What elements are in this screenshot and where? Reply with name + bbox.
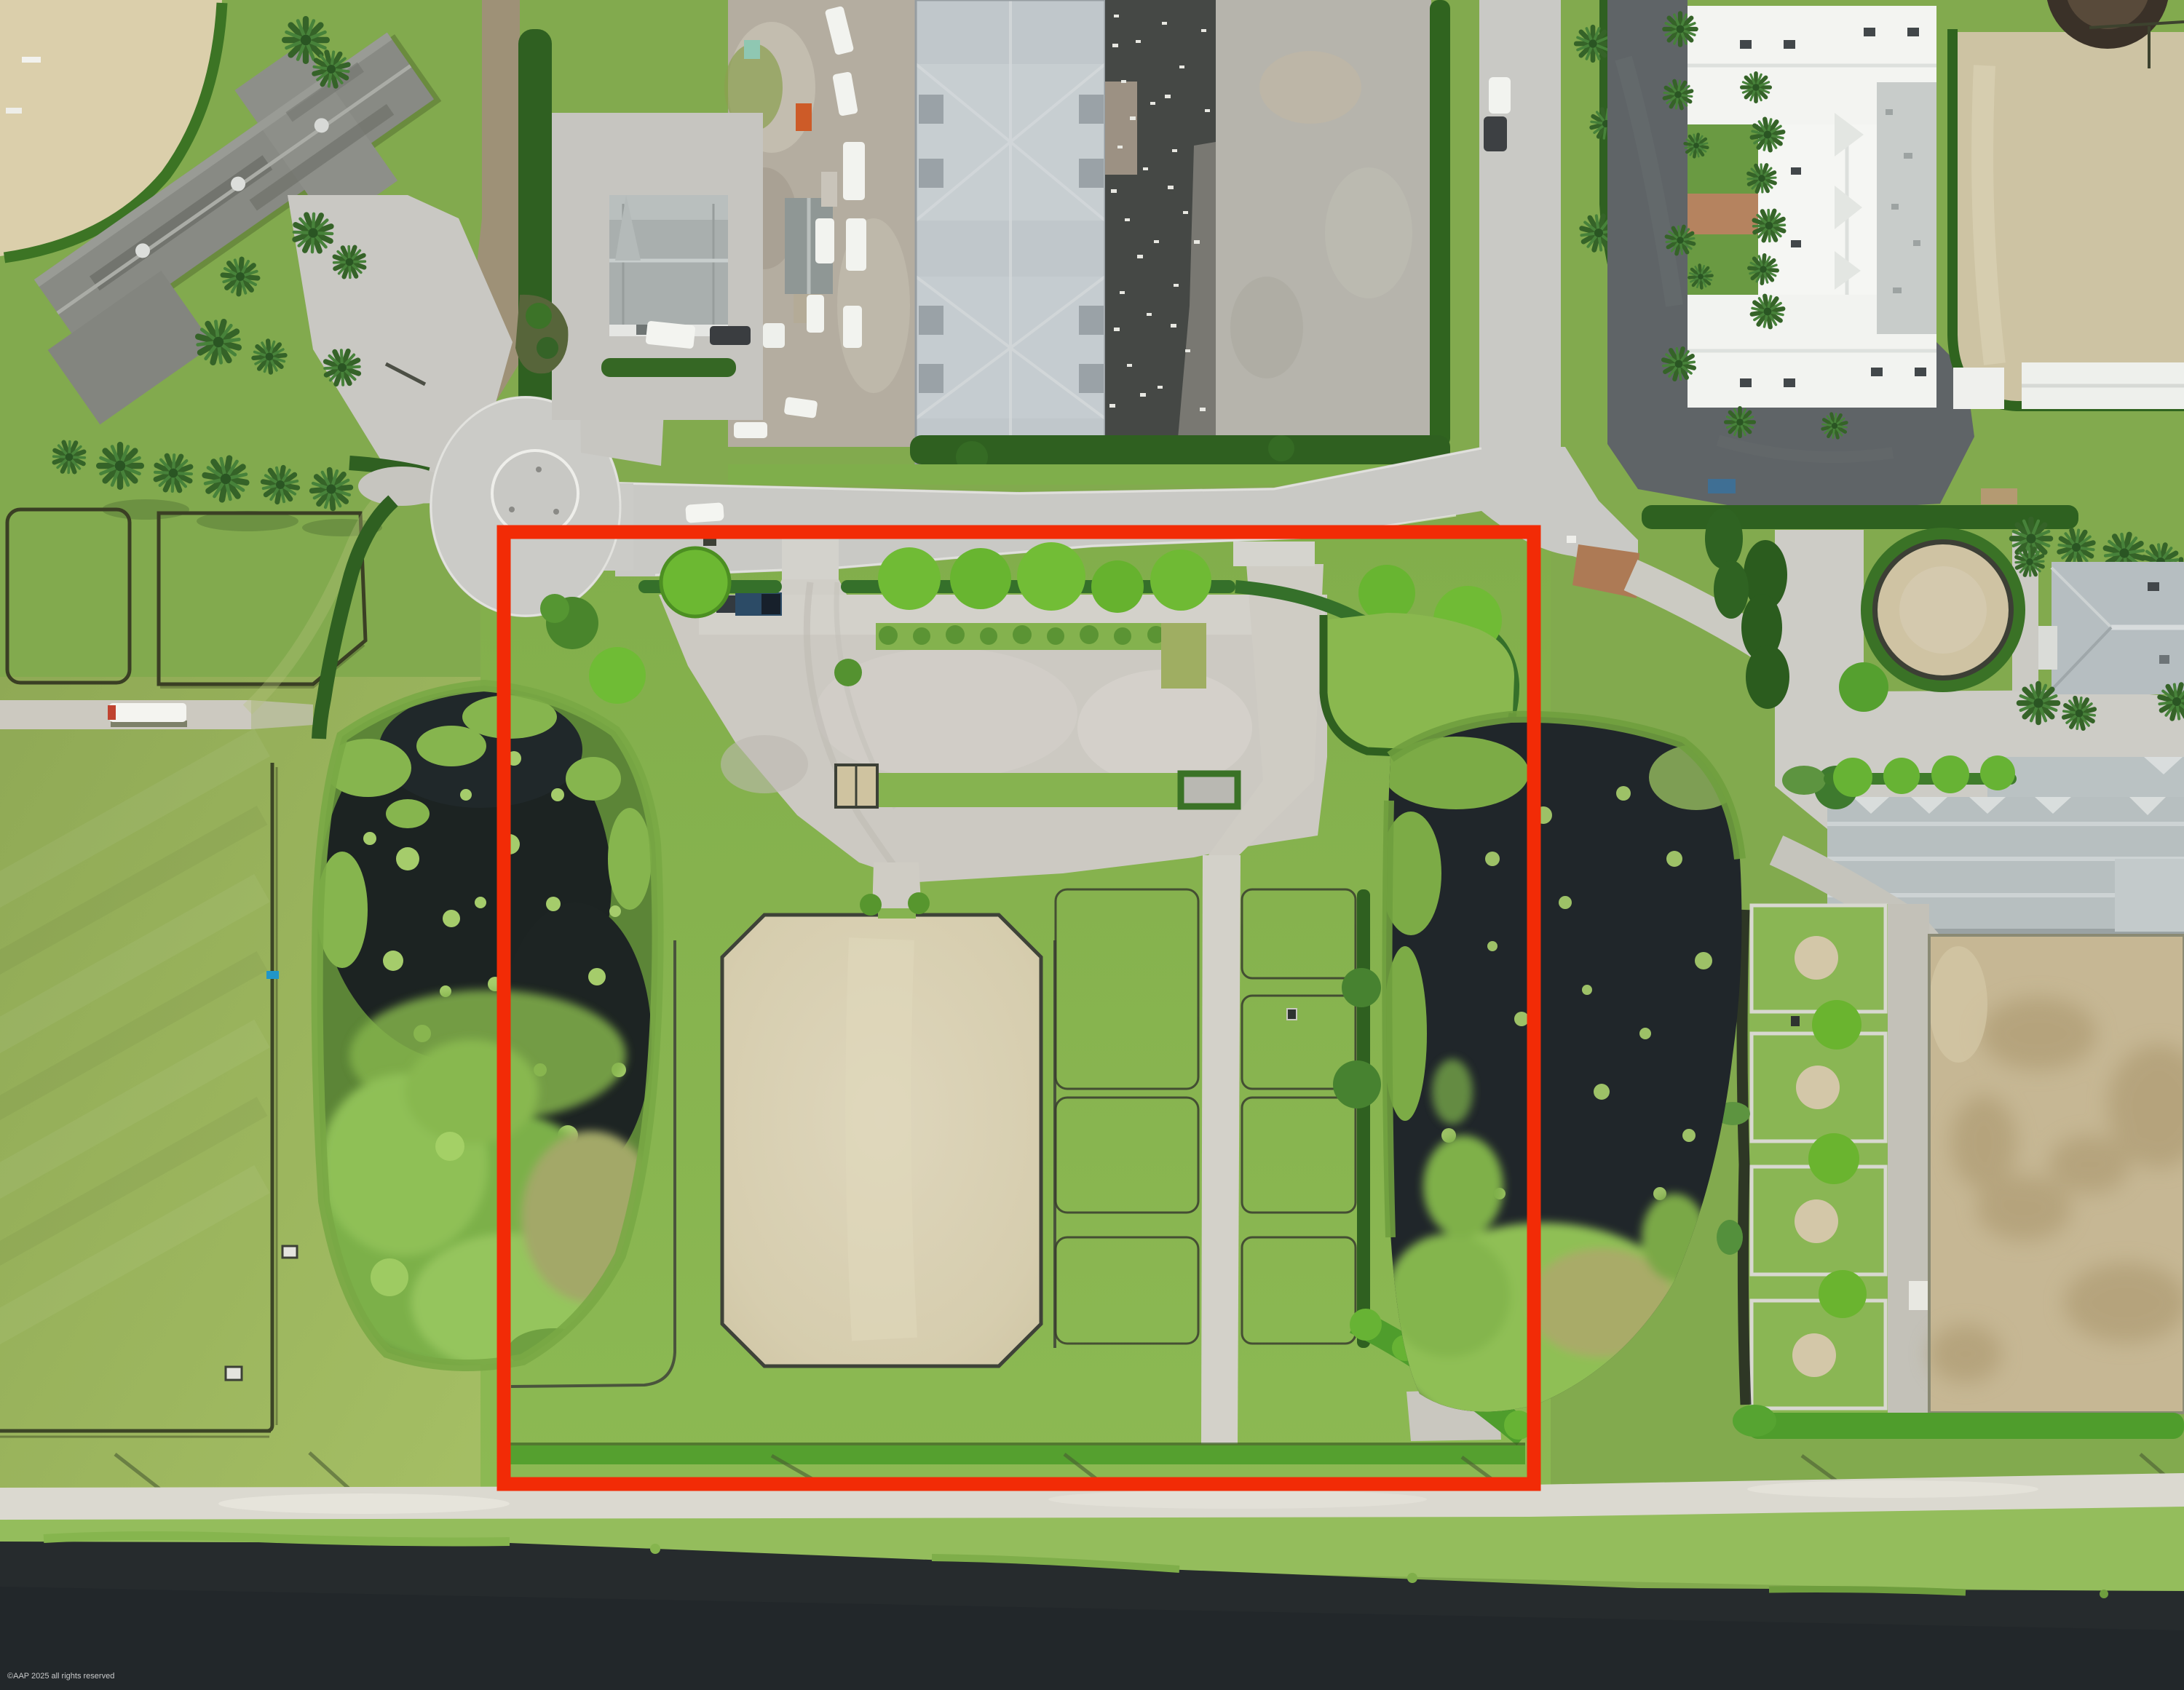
- svg-text:©AAP 2025 all rights reserved: ©AAP 2025 all rights reserved: [7, 1672, 114, 1681]
